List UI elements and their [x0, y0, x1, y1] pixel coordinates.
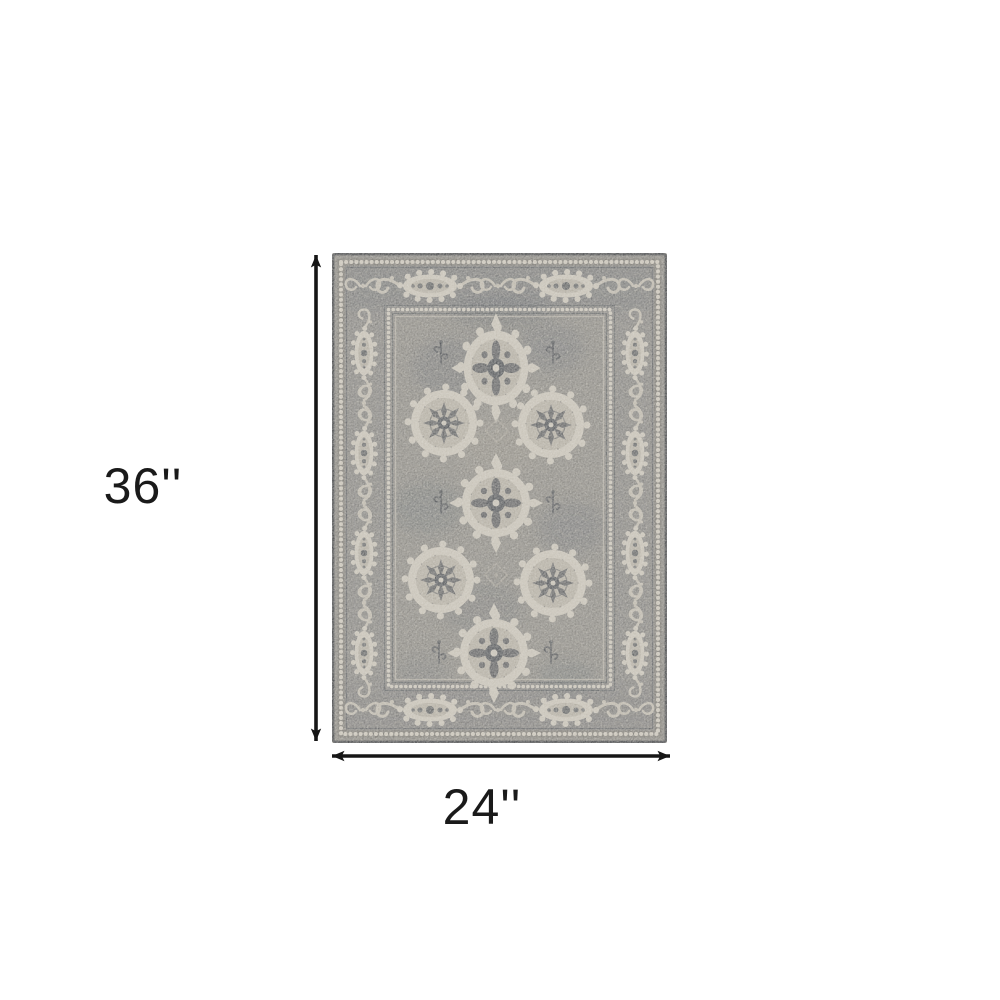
width-dimension-label: 24''	[443, 778, 522, 836]
rug-image	[332, 253, 667, 743]
height-dimension-label: 36''	[104, 457, 183, 515]
dimension-diagram: 36'' 24''	[0, 0, 1000, 1000]
